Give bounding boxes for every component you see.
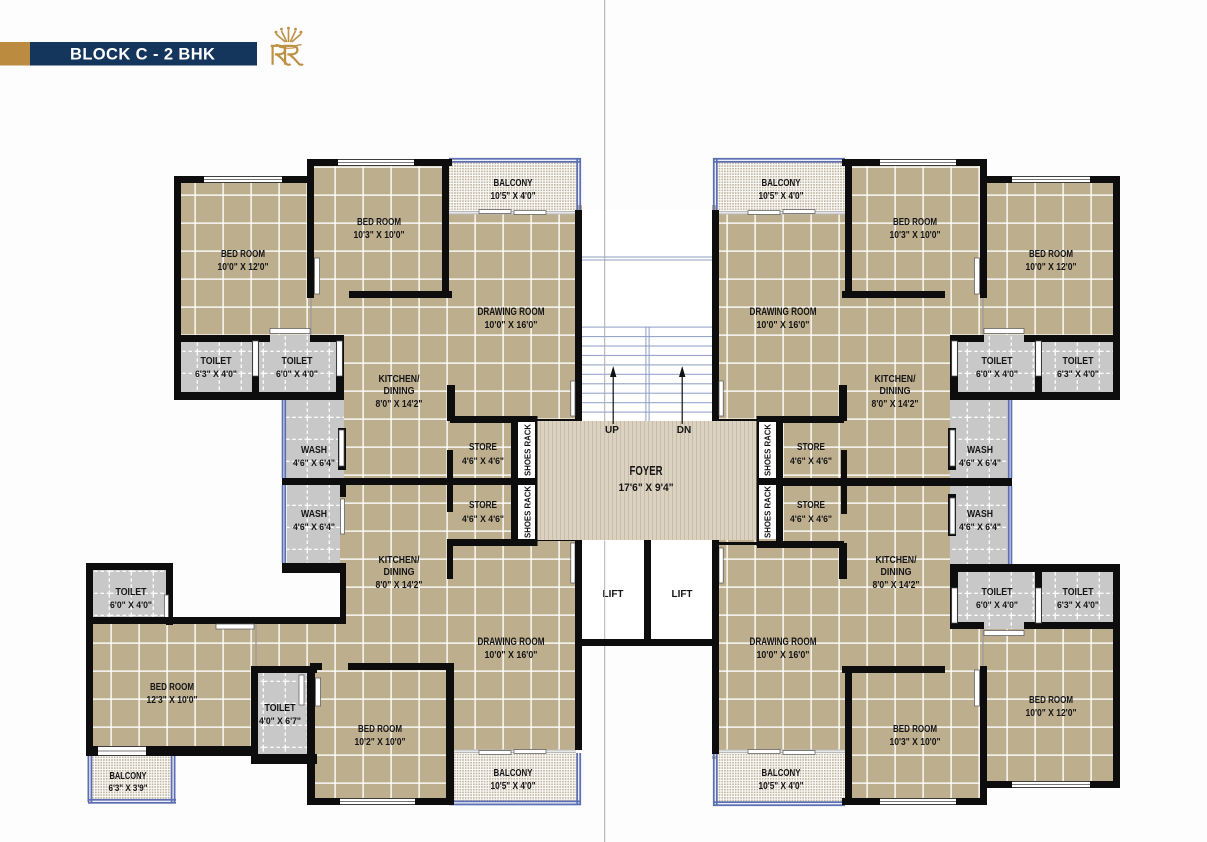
svg-text:6'0" X 4'0": 6'0" X 4'0" (110, 600, 152, 611)
svg-text:DINING: DINING (880, 385, 911, 397)
svg-text:10'0" X 16'0": 10'0" X 16'0" (757, 320, 810, 331)
svg-text:BALCONY: BALCONY (762, 768, 801, 779)
svg-text:10'5" X 4'0": 10'5" X 4'0" (491, 191, 536, 202)
svg-text:TOILET: TOILET (982, 356, 1014, 367)
svg-text:KITCHEN/: KITCHEN/ (379, 373, 420, 385)
svg-text:4'6" X 6'4": 4'6" X 6'4" (959, 522, 1001, 533)
svg-text:KITCHEN/: KITCHEN/ (379, 554, 420, 566)
svg-text:DRAWING ROOM: DRAWING ROOM (750, 306, 817, 318)
svg-text:WASH: WASH (967, 445, 993, 456)
svg-text:BED ROOM: BED ROOM (1029, 695, 1073, 706)
svg-text:SHOES RACK: SHOES RACK (524, 486, 533, 538)
svg-text:10'0" X 16'0": 10'0" X 16'0" (485, 320, 538, 331)
svg-text:4'0" X 6'7": 4'0" X 6'7" (259, 716, 301, 727)
svg-text:STORE: STORE (797, 442, 825, 453)
svg-text:6'3" X 4'0": 6'3" X 4'0" (1057, 369, 1099, 380)
svg-text:6'0" X 4'0": 6'0" X 4'0" (976, 369, 1018, 380)
svg-text:12'3" X 10'0": 12'3" X 10'0" (147, 695, 198, 706)
svg-text:TOILET: TOILET (282, 356, 314, 367)
svg-text:STORE: STORE (469, 442, 497, 453)
svg-text:BED ROOM: BED ROOM (150, 682, 194, 693)
svg-text:10'0" X 12'0": 10'0" X 12'0" (1026, 262, 1077, 273)
svg-text:10'0" X 12'0": 10'0" X 12'0" (1026, 708, 1077, 719)
svg-text:BED ROOM: BED ROOM (221, 249, 265, 260)
svg-text:BED ROOM: BED ROOM (893, 724, 937, 735)
svg-text:4'6" X 6'4": 4'6" X 6'4" (959, 458, 1001, 469)
svg-text:10'3" X 10'0": 10'3" X 10'0" (890, 230, 941, 241)
svg-text:8'0" X 14'2": 8'0" X 14'2" (376, 580, 423, 591)
svg-text:BALCONY: BALCONY (110, 771, 147, 782)
svg-text:4'6" X 4'6": 4'6" X 4'6" (462, 456, 504, 467)
svg-text:TOILET: TOILET (116, 587, 148, 598)
svg-text:DRAWING ROOM: DRAWING ROOM (750, 636, 817, 648)
svg-text:UP: UP (605, 425, 619, 436)
svg-text:WASH: WASH (301, 509, 327, 520)
svg-text:4'6" X 4'6": 4'6" X 4'6" (790, 514, 832, 525)
svg-text:10'2" X 10'0": 10'2" X 10'0" (355, 737, 406, 748)
svg-text:TOILET: TOILET (201, 356, 233, 367)
svg-text:LIFT: LIFT (672, 589, 693, 600)
svg-text:WASH: WASH (967, 509, 993, 520)
svg-text:4'6" X 4'6": 4'6" X 4'6" (462, 514, 504, 525)
svg-text:6'0" X 4'0": 6'0" X 4'0" (976, 600, 1018, 611)
svg-text:DINING: DINING (881, 566, 912, 578)
svg-text:10'5" X 4'0": 10'5" X 4'0" (491, 781, 536, 792)
svg-text:8'0" X 14'2": 8'0" X 14'2" (376, 399, 423, 410)
svg-text:8'0" X 14'2": 8'0" X 14'2" (873, 580, 920, 591)
svg-text:17'6" X 9'4": 17'6" X 9'4" (619, 482, 674, 494)
svg-text:STORE: STORE (797, 500, 825, 511)
svg-text:TOILET: TOILET (265, 703, 297, 714)
svg-text:BLOCK C - 2 BHK: BLOCK C - 2 BHK (70, 46, 215, 64)
svg-text:TOILET: TOILET (1063, 356, 1095, 367)
svg-text:DRAWING ROOM: DRAWING ROOM (478, 636, 545, 648)
svg-text:4'6" X 4'6": 4'6" X 4'6" (790, 456, 832, 467)
svg-text:6'3" X 3'9": 6'3" X 3'9" (109, 783, 148, 793)
svg-text:TOILET: TOILET (1063, 587, 1095, 598)
svg-text:SHOES RACK: SHOES RACK (764, 424, 773, 476)
svg-text:BED ROOM: BED ROOM (358, 724, 402, 735)
svg-text:6'3" X 4'0": 6'3" X 4'0" (195, 369, 237, 380)
svg-text:FOYER: FOYER (630, 464, 663, 478)
svg-text:10'0" X 16'0": 10'0" X 16'0" (485, 650, 538, 661)
svg-text:8'0" X 14'2": 8'0" X 14'2" (872, 399, 919, 410)
svg-text:KITCHEN/: KITCHEN/ (875, 373, 916, 385)
svg-text:WASH: WASH (301, 445, 327, 456)
svg-text:DINING: DINING (384, 385, 415, 397)
svg-text:BED ROOM: BED ROOM (357, 217, 401, 228)
svg-text:DRAWING ROOM: DRAWING ROOM (478, 306, 545, 318)
svg-text:KITCHEN/: KITCHEN/ (876, 554, 917, 566)
svg-text:6'0" X 4'0": 6'0" X 4'0" (276, 369, 318, 380)
svg-text:SHOES RACK: SHOES RACK (524, 424, 533, 476)
svg-text:DN: DN (677, 425, 691, 436)
svg-text:10'0" X 16'0": 10'0" X 16'0" (757, 650, 810, 661)
svg-text:6'3" X 4'0": 6'3" X 4'0" (1057, 600, 1099, 611)
svg-text:SHOES RACK: SHOES RACK (764, 486, 773, 538)
svg-text:10'0" X 12'0": 10'0" X 12'0" (218, 262, 269, 273)
svg-text:STORE: STORE (469, 500, 497, 511)
svg-text:DINING: DINING (384, 566, 415, 578)
svg-text:4'6" X 6'4": 4'6" X 6'4" (293, 458, 335, 469)
svg-text:4'6" X 6'4": 4'6" X 6'4" (293, 522, 335, 533)
svg-text:LIFT: LIFT (603, 589, 624, 600)
svg-text:BED ROOM: BED ROOM (1029, 249, 1073, 260)
svg-text:10'3" X 10'0": 10'3" X 10'0" (354, 230, 405, 241)
svg-text:BED ROOM: BED ROOM (893, 217, 937, 228)
svg-text:10'5" X 4'0": 10'5" X 4'0" (759, 191, 804, 202)
svg-text:BALCONY: BALCONY (762, 178, 801, 189)
svg-text:BALCONY: BALCONY (494, 178, 533, 189)
svg-text:BALCONY: BALCONY (494, 768, 533, 779)
svg-text:10'3" X 10'0": 10'3" X 10'0" (890, 737, 941, 748)
svg-text:10'5" X 4'0": 10'5" X 4'0" (759, 781, 804, 792)
svg-text:TOILET: TOILET (982, 587, 1014, 598)
